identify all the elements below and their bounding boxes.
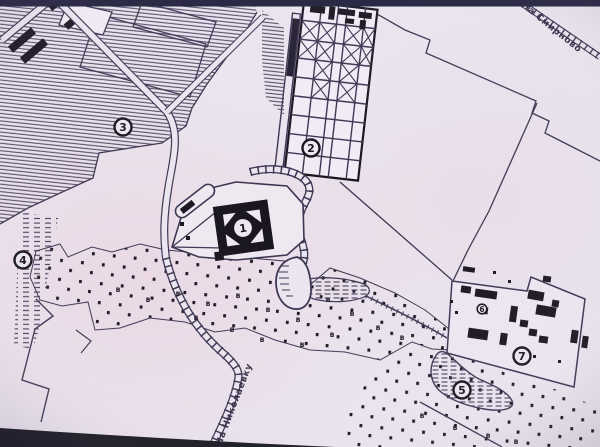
map-photo: 1 в в в в в в в в в в в в (0, 0, 600, 447)
photo-vignette (0, 0, 600, 447)
